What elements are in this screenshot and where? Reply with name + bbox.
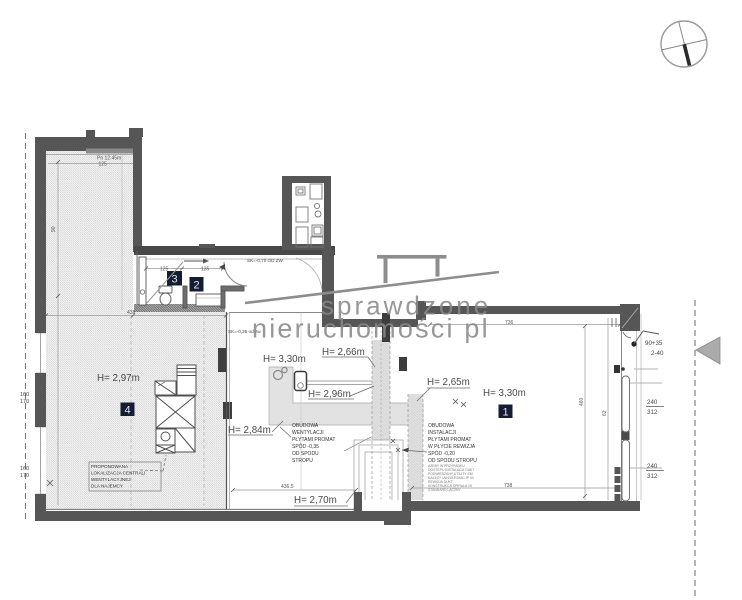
svg-text:736: 736 xyxy=(505,320,514,326)
svg-text:DLA NAJEMCY: DLA NAJEMCY xyxy=(91,484,123,489)
svg-text:2-40: 2-40 xyxy=(651,350,664,357)
svg-text:H= 2,97m: H= 2,97m xyxy=(97,373,140,384)
svg-text:H= 2,65m: H= 2,65m xyxy=(427,377,470,388)
svg-text:90+35: 90+35 xyxy=(645,340,663,347)
svg-text:SPÓD -0,35: SPÓD -0,35 xyxy=(292,443,319,450)
svg-text:135: 135 xyxy=(201,267,210,273)
svg-text:3: 3 xyxy=(171,274,177,286)
svg-text:160: 160 xyxy=(20,466,29,472)
svg-text:125: 125 xyxy=(99,162,108,168)
svg-text:SK=-0,70 OD ZW.: SK=-0,70 OD ZW. xyxy=(247,258,284,263)
svg-text:H= 3,30m: H= 3,30m xyxy=(263,354,306,365)
svg-text:STROPU: STROPU xyxy=(292,458,313,464)
svg-text:OBUDOWA: OBUDOWA xyxy=(292,423,319,429)
svg-text:160: 160 xyxy=(20,392,29,398)
svg-text:W PŁYCIE REWIZJA: W PŁYCIE REWIZJA xyxy=(428,444,476,450)
svg-text:H= 2,84m: H= 2,84m xyxy=(228,425,271,436)
svg-text:H= 2,70m: H= 2,70m xyxy=(294,495,337,506)
svg-text:460: 460 xyxy=(579,397,585,406)
svg-text:738: 738 xyxy=(504,483,513,489)
svg-text:PŁYTAMI PROMAT: PŁYTAMI PROMAT xyxy=(292,437,335,443)
svg-text:312: 312 xyxy=(647,409,658,416)
svg-text:312: 312 xyxy=(647,473,658,480)
svg-text:170: 170 xyxy=(20,473,29,479)
svg-text:H= 2,66m: H= 2,66m xyxy=(322,347,365,358)
svg-text:OBUDOWA: OBUDOWA xyxy=(428,423,455,429)
svg-text:2: 2 xyxy=(193,280,199,292)
svg-text:170: 170 xyxy=(20,399,29,405)
svg-text:SPÓD -0,20: SPÓD -0,20 xyxy=(428,450,455,457)
svg-text:438: 438 xyxy=(127,310,136,316)
svg-text:LOKALIZACJA CENTRALI: LOKALIZACJA CENTRALI xyxy=(91,471,145,476)
svg-text:INSTALACJI: INSTALACJI xyxy=(428,430,456,436)
svg-text:OD SPODU: OD SPODU xyxy=(292,451,319,457)
svg-text:125: 125 xyxy=(160,267,169,273)
svg-text:STANDARD LACZNY: STANDARD LACZNY xyxy=(428,488,461,492)
svg-text:90: 90 xyxy=(51,226,57,232)
svg-text:62: 62 xyxy=(602,410,608,416)
svg-text:WENTYLACYJNEJ: WENTYLACYJNEJ xyxy=(91,477,131,482)
svg-text:WENTYLACJI: WENTYLACJI xyxy=(292,430,324,436)
svg-text:4: 4 xyxy=(124,405,130,417)
svg-text:H= 3,30m: H= 3,30m xyxy=(483,388,526,399)
svg-text:1: 1 xyxy=(502,407,508,419)
svg-text:H= 2,96m: H= 2,96m xyxy=(308,389,351,400)
svg-text:436.5: 436.5 xyxy=(281,484,294,490)
svg-text:240: 240 xyxy=(647,399,658,406)
svg-text:240: 240 xyxy=(647,463,658,470)
svg-text:PŁYTAMI PROMAT: PŁYTAMI PROMAT xyxy=(428,437,471,443)
svg-text:PROPONOWANA: PROPONOWANA xyxy=(91,464,129,469)
svg-text:nieruchomości pl: nieruchomości pl xyxy=(252,314,490,344)
